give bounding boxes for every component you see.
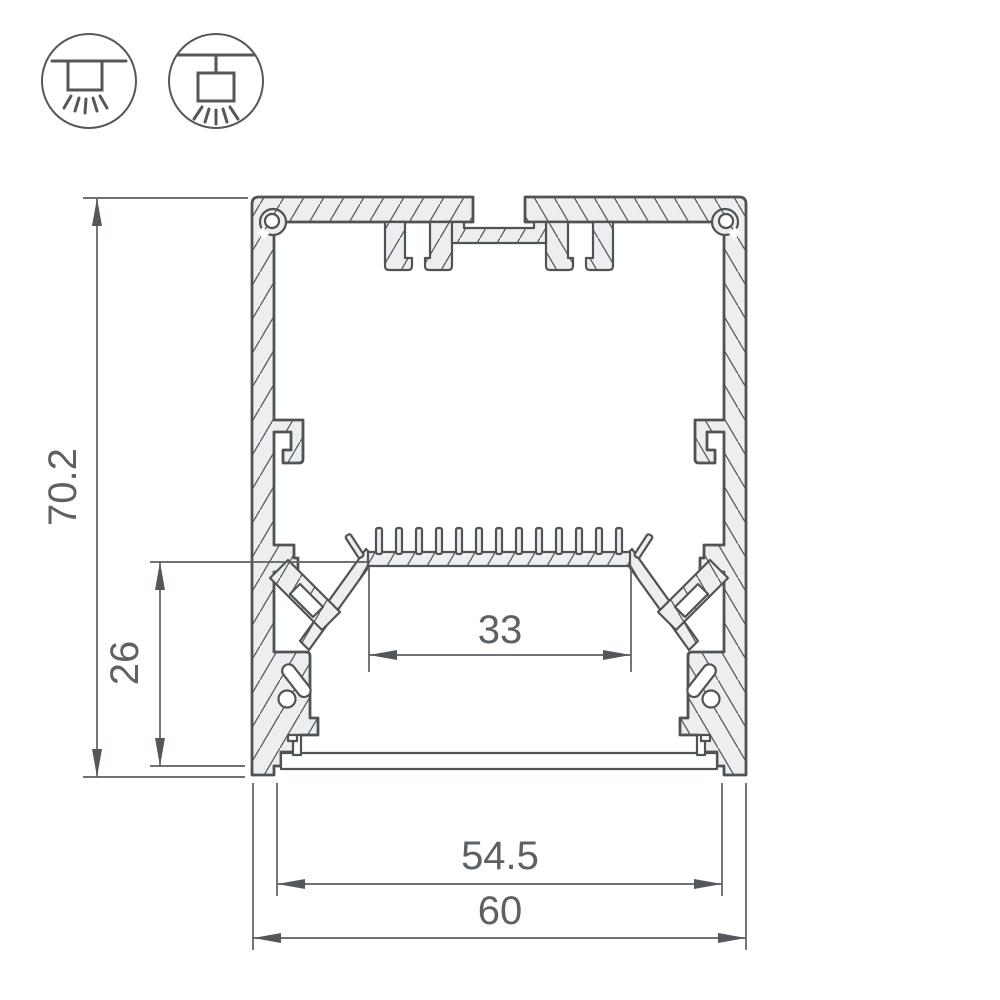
diffuser-cover xyxy=(281,735,717,769)
dim-label-33: 33 xyxy=(478,608,523,652)
keyhole-hole xyxy=(279,691,296,708)
heatsink-platform xyxy=(368,528,630,566)
dim-label-54-5: 54.5 xyxy=(461,834,539,878)
dim-label-26: 26 xyxy=(103,641,147,686)
surface-mount-luminaire-icon xyxy=(42,34,136,128)
profile-right-half xyxy=(525,197,746,775)
dimension-cover-width: 54.5 xyxy=(277,783,722,896)
dimension-led-shelf-width: 33 xyxy=(369,567,631,672)
dim-label-60: 60 xyxy=(478,889,523,933)
profile-drawing: 70.2 26 33 54.5 60 xyxy=(0,0,1000,1000)
dim-label-70-2: 70.2 xyxy=(41,448,85,526)
extrusion-profile xyxy=(252,197,746,775)
technical-drawing-page: 70.2 26 33 54.5 60 xyxy=(0,0,1000,1000)
t-slot-leg xyxy=(385,222,412,270)
light-rays xyxy=(194,107,238,124)
pendant-mount-luminaire-icon xyxy=(169,34,263,128)
suspension-channel xyxy=(452,222,546,243)
profile-wall xyxy=(252,197,473,775)
dimension-total-height: 70.2 xyxy=(41,198,248,777)
heatsink-end-fin xyxy=(345,534,364,559)
dimension-chamber-height: 26 xyxy=(103,562,368,766)
light-rays xyxy=(64,96,107,113)
heatsink-fins xyxy=(376,528,622,554)
t-slot-leg xyxy=(425,222,452,270)
screw-boss-hole xyxy=(265,214,279,228)
profile-left-half xyxy=(252,197,473,775)
